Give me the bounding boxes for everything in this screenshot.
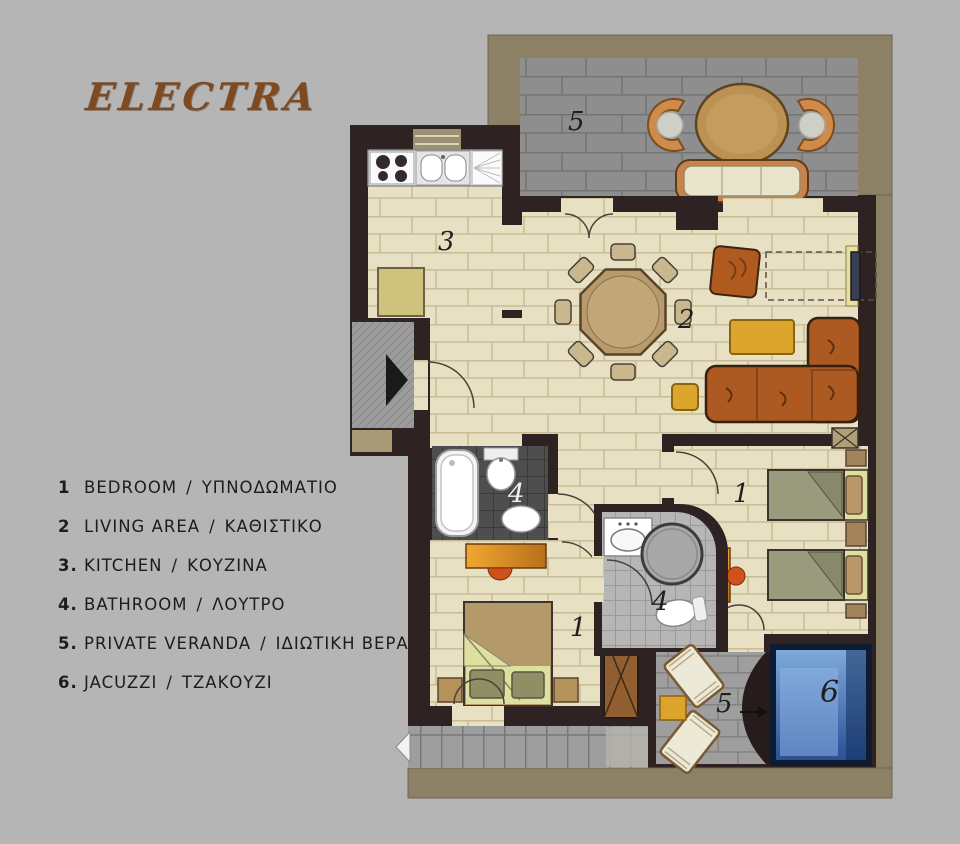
kitchen-window: [413, 129, 461, 151]
nightstand: [846, 450, 866, 466]
stove: [370, 152, 414, 184]
veranda-door-opening: [561, 198, 613, 214]
kitchen-table: [378, 268, 424, 316]
room-label-living: 2: [677, 305, 695, 335]
kitchen-opening: [502, 225, 522, 310]
coffee-table: [730, 320, 794, 354]
floorplan-drawing: 5: [0, 0, 960, 844]
twin-bed-2: [768, 550, 868, 600]
entrance-door-opening: [414, 360, 428, 410]
double-bed: [464, 602, 552, 706]
room-label-bath-ensuite: 4: [651, 587, 669, 617]
room-label-veranda-lounge: 5: [716, 689, 733, 719]
kitchen: 3: [368, 129, 522, 318]
sink-main: [502, 506, 540, 532]
room-label-bath-main: 4: [507, 479, 525, 509]
veranda-top: 5: [520, 58, 858, 202]
stool-twin: [727, 567, 745, 585]
bathroom-ensuite: 4: [592, 504, 728, 656]
room-label-bedroom-twin: 1: [733, 479, 750, 509]
veranda-wide-opening: [723, 198, 823, 214]
tv-unit: [846, 246, 860, 306]
veranda-bottom: 5: [656, 644, 770, 775]
bath-ensuite-door-opening: [592, 556, 604, 602]
room-label-veranda-top: 5: [568, 107, 585, 137]
wall-stub: [676, 196, 718, 230]
bedroom-twin-door-opening: [658, 452, 676, 498]
kitchen-sink: [416, 151, 470, 185]
dresser-double: [466, 544, 546, 568]
side-stool: [672, 384, 698, 410]
walkway: [396, 726, 648, 768]
room-label-kitchen: 3: [438, 227, 455, 257]
walkway-arrow-icon: [396, 732, 410, 762]
hall-floor: [558, 434, 662, 516]
twin-bed-1: [768, 470, 868, 520]
shaft-column: [832, 428, 858, 448]
entrance-step: [352, 430, 392, 452]
bathtub: [436, 450, 478, 536]
armchair: [710, 246, 761, 299]
kitchen-counter: [368, 150, 502, 186]
nightstand: [554, 678, 578, 702]
veranda-side-table: [660, 696, 686, 720]
room-label-jacuzzi: 6: [820, 675, 839, 710]
drain-board: [472, 151, 502, 185]
jacuzzi: 6: [770, 644, 872, 766]
nightstand: [846, 604, 866, 618]
bedroom-double-exit-opening: [452, 706, 504, 726]
plan-frame-bottom: [408, 768, 892, 798]
bath-main-door-opening: [548, 494, 558, 538]
veranda-round-table: [696, 84, 788, 164]
entry-corridor-floor: [430, 318, 522, 448]
nightstand: [846, 522, 866, 546]
floorplan-page: ELECTRA 1 BEDROOM / ΥΠΝΟΔΩΜΑΤΙΟ 2 LIVING…: [0, 0, 960, 844]
shower: [642, 524, 702, 584]
veranda-bench: [676, 160, 808, 202]
room-label-bedroom-double: 1: [570, 613, 587, 643]
